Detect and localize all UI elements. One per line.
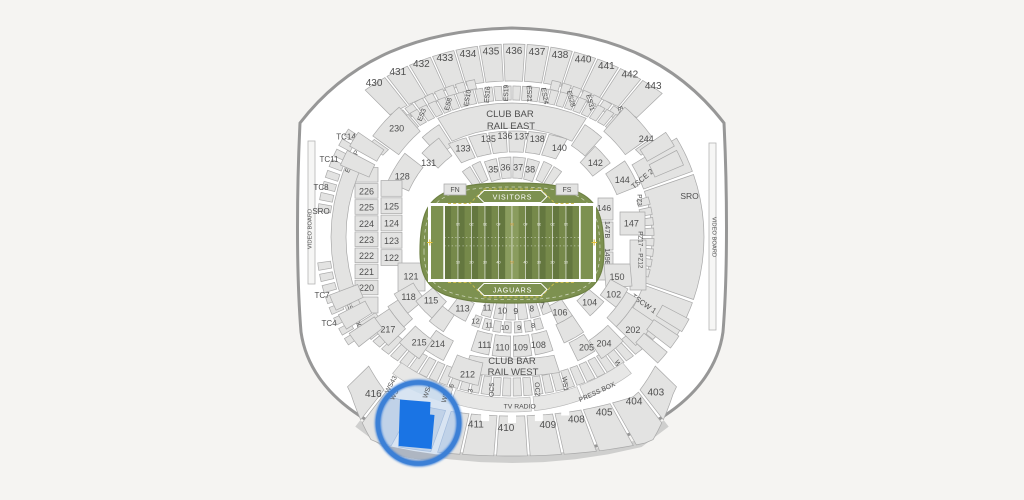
svg-text:124: 124	[384, 219, 399, 229]
svg-text:434: 434	[460, 49, 477, 60]
svg-text:20: 20	[469, 261, 473, 265]
svg-text:106: 106	[552, 308, 567, 318]
svg-text:128: 128	[395, 172, 410, 182]
svg-text:204: 204	[596, 339, 611, 349]
svg-text:40: 40	[523, 222, 527, 226]
svg-text:20: 20	[550, 261, 554, 265]
svg-text:432: 432	[413, 59, 430, 70]
svg-text:405: 405	[596, 408, 613, 419]
svg-text:ES21: ES21	[525, 85, 533, 102]
svg-text:410: 410	[498, 423, 515, 434]
svg-text:TV RADIO: TV RADIO	[504, 404, 536, 411]
svg-text:224: 224	[359, 219, 374, 229]
svg-text:442: 442	[621, 70, 638, 81]
svg-text:118: 118	[401, 292, 415, 302]
svg-text:TC8: TC8	[313, 183, 329, 192]
svg-text:404: 404	[626, 397, 643, 408]
svg-text:205: 205	[579, 343, 594, 353]
svg-text:110: 110	[495, 343, 509, 353]
svg-text:12: 12	[471, 316, 479, 325]
svg-text:135: 135	[481, 134, 496, 144]
svg-text:30: 30	[483, 222, 487, 226]
svg-text:408: 408	[568, 415, 585, 426]
svg-text:221: 221	[359, 267, 374, 277]
svg-text:436: 436	[506, 46, 523, 57]
svg-text:142: 142	[588, 158, 603, 168]
svg-text:10: 10	[456, 222, 460, 226]
svg-text:40: 40	[523, 261, 527, 265]
svg-text:SRO: SRO	[680, 191, 699, 201]
svg-text:144: 144	[615, 175, 630, 185]
svg-text:411: 411	[468, 420, 484, 431]
svg-text:138: 138	[530, 134, 545, 144]
svg-text:50: 50	[510, 222, 514, 226]
svg-text:416: 416	[365, 389, 382, 400]
svg-text:OC5: OC5	[489, 383, 496, 397]
svg-text:10: 10	[456, 261, 460, 265]
svg-text:225: 225	[359, 203, 374, 213]
svg-text:10: 10	[501, 323, 509, 332]
svg-text:CLUB BAR: CLUB BAR	[486, 109, 534, 120]
svg-text:147: 147	[624, 218, 639, 228]
svg-text:431: 431	[389, 67, 406, 78]
svg-text:222: 222	[359, 251, 374, 261]
svg-text:440: 440	[575, 55, 592, 66]
svg-text:437: 437	[529, 47, 546, 58]
svg-text:ES16: ES16	[484, 86, 492, 103]
svg-text:FN: FN	[450, 187, 459, 194]
svg-text:226: 226	[359, 187, 374, 197]
svg-text:PZ3: PZ3	[636, 194, 643, 206]
svg-text:147B: 147B	[603, 221, 612, 239]
svg-text:TC4: TC4	[321, 319, 337, 328]
svg-text:11: 11	[485, 320, 493, 329]
svg-text:VISITORS: VISITORS	[493, 194, 533, 201]
svg-text:104: 104	[582, 298, 597, 308]
svg-text:35: 35	[488, 165, 498, 175]
svg-text:10: 10	[498, 306, 508, 316]
svg-text:430: 430	[366, 78, 383, 89]
svg-text:435: 435	[483, 47, 500, 58]
svg-text:125: 125	[384, 201, 399, 211]
svg-text:223: 223	[359, 235, 374, 245]
svg-text:403: 403	[647, 388, 664, 399]
svg-text:8: 8	[531, 321, 535, 330]
svg-text:9: 9	[513, 306, 518, 316]
svg-text:30: 30	[483, 261, 487, 265]
svg-text:133: 133	[455, 144, 470, 154]
svg-text:102: 102	[606, 289, 621, 299]
svg-text:50: 50	[510, 261, 514, 265]
svg-text:40: 40	[496, 261, 500, 265]
svg-text:CLUB BAR: CLUB BAR	[488, 356, 536, 367]
svg-text:11: 11	[483, 302, 492, 312]
svg-text:30: 30	[537, 261, 541, 265]
svg-text:30: 30	[537, 222, 541, 226]
svg-text:VIDEO BOARD: VIDEO BOARD	[711, 217, 717, 257]
svg-text:40: 40	[496, 222, 500, 226]
svg-text:121: 121	[403, 271, 418, 281]
svg-text:215: 215	[412, 338, 427, 348]
svg-text:FS: FS	[563, 187, 572, 194]
svg-text:38: 38	[525, 164, 535, 174]
svg-text:131: 131	[421, 158, 436, 168]
svg-text:113: 113	[455, 304, 469, 314]
svg-text:443: 443	[645, 81, 662, 92]
svg-text:108: 108	[531, 340, 546, 350]
svg-text:140: 140	[552, 143, 567, 153]
svg-text:438: 438	[552, 50, 569, 61]
svg-text:36: 36	[500, 162, 510, 172]
svg-text:220: 220	[359, 283, 374, 293]
svg-text:10: 10	[564, 261, 568, 265]
svg-text:TC7: TC7	[314, 291, 330, 300]
svg-text:441: 441	[598, 61, 615, 72]
svg-text:9: 9	[517, 323, 521, 332]
svg-text:ES19: ES19	[503, 84, 510, 101]
svg-text:136: 136	[497, 131, 512, 141]
svg-text:TC11: TC11	[320, 155, 340, 164]
svg-text:109: 109	[513, 343, 528, 353]
svg-text:202: 202	[625, 325, 640, 335]
svg-text:230: 230	[389, 124, 404, 134]
svg-text:111: 111	[478, 340, 492, 350]
svg-text:146: 146	[597, 203, 611, 213]
svg-text:217: 217	[380, 325, 395, 335]
svg-text:8: 8	[529, 304, 534, 314]
svg-text:20: 20	[469, 222, 473, 226]
svg-text:OC2: OC2	[533, 382, 541, 397]
svg-text:212: 212	[460, 370, 475, 380]
svg-text:RAIL WEST: RAIL WEST	[488, 367, 539, 378]
svg-text:10: 10	[564, 222, 568, 226]
svg-text:433: 433	[436, 53, 453, 64]
svg-text:115: 115	[424, 296, 438, 306]
svg-text:122: 122	[384, 253, 399, 263]
svg-text:37: 37	[513, 162, 523, 172]
svg-text:123: 123	[384, 236, 399, 246]
svg-text:137: 137	[514, 132, 529, 142]
svg-text:20: 20	[550, 222, 554, 226]
svg-text:JAGUARS: JAGUARS	[493, 287, 532, 294]
svg-text:409: 409	[539, 420, 556, 431]
svg-text:SRO: SRO	[312, 207, 329, 216]
svg-text:PZ17 – PZ12: PZ17 – PZ12	[637, 231, 644, 269]
